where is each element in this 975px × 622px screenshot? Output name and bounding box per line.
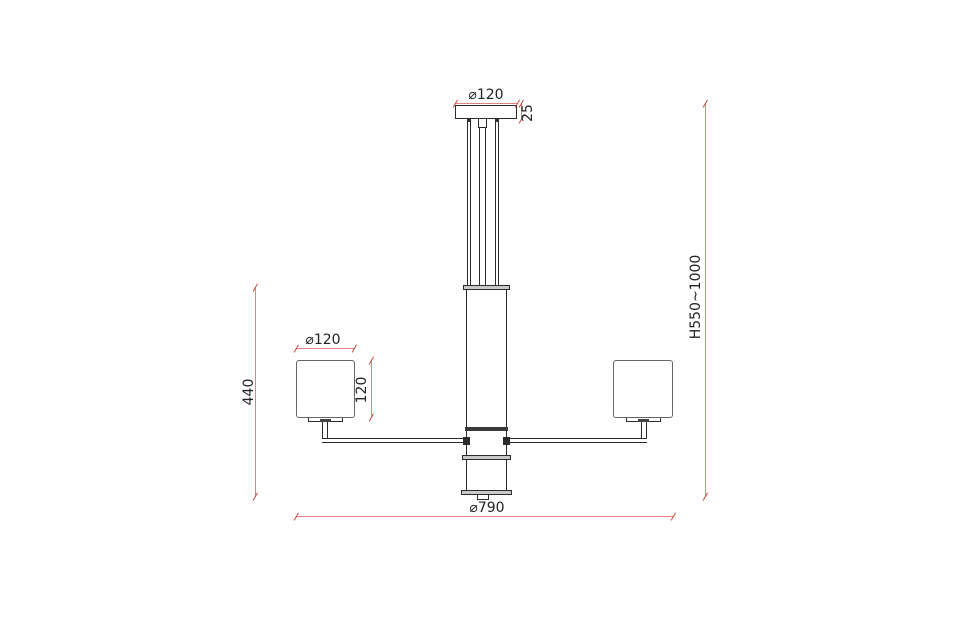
dim-label-frame-h: 440: [240, 352, 258, 432]
dim-tick: [671, 512, 677, 520]
arm-left: [322, 438, 467, 443]
arm-stem-right: [641, 421, 647, 439]
shade-right: [613, 360, 673, 418]
dim-tick: [253, 492, 259, 500]
rod-center-connector: [478, 118, 487, 128]
rod-center: [479, 128, 486, 285]
dim-label-canopy-h: 25: [519, 73, 537, 153]
dim-label-shade-dia: ⌀120: [283, 331, 363, 349]
lamp-dimension-drawing: ⌀120 25 ⌀120 120 440 H550~1000 ⌀790: [0, 0, 975, 622]
dim-label-canopy-dia: ⌀120: [446, 86, 526, 104]
dim-line-height-range: [705, 103, 706, 497]
dim-tick: [703, 492, 709, 500]
column-lower: [466, 460, 507, 490]
rod-right: [495, 121, 499, 285]
column-hub: [466, 431, 507, 455]
column-upper: [466, 289, 507, 428]
dim-label-height-range: H550~1000: [687, 257, 705, 337]
shade-fitting-left: [320, 419, 331, 422]
shade-left: [296, 360, 355, 418]
canopy: [455, 105, 517, 119]
dim-line-shade-h: [371, 360, 372, 418]
rod-left: [467, 121, 471, 285]
arm-stem-left: [322, 421, 328, 439]
dim-label-overall-dia: ⌀790: [447, 499, 527, 517]
dim-label-shade-h: 120: [353, 350, 371, 430]
shade-fitting-right: [638, 419, 649, 422]
arm-right: [506, 438, 647, 443]
